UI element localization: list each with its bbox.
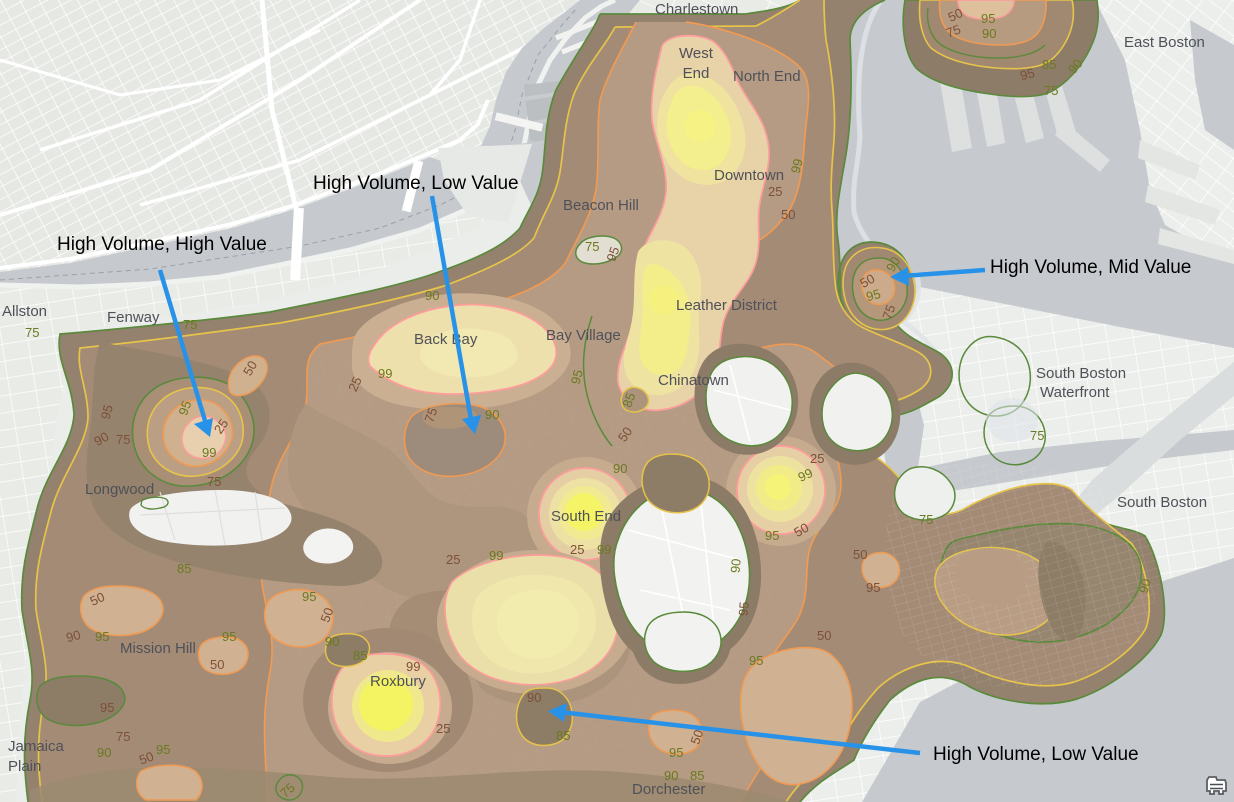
svg-text:25: 25 (446, 552, 460, 567)
svg-text:95: 95 (866, 580, 880, 595)
svg-text:Allston: Allston (2, 303, 47, 320)
svg-text:95: 95 (156, 742, 170, 757)
svg-text:High Volume, Mid Value: High Volume, Mid Value (990, 257, 1191, 278)
svg-text:85: 85 (556, 728, 570, 743)
svg-text:50: 50 (781, 207, 795, 222)
svg-text:Back Bay: Back Bay (414, 331, 478, 348)
svg-text:90: 90 (728, 558, 744, 574)
svg-text:75: 75 (116, 729, 130, 744)
svg-text:Roxbury: Roxbury (370, 673, 426, 690)
svg-text:Mission Hill: Mission Hill (120, 640, 196, 657)
svg-text:95: 95 (981, 11, 995, 26)
svg-text:75: 75 (207, 474, 221, 489)
svg-text:Plain: Plain (8, 758, 41, 775)
svg-text:90: 90 (325, 634, 339, 649)
svg-text:25: 25 (570, 542, 584, 557)
svg-text:Bay Village: Bay Village (546, 327, 621, 344)
svg-text:95: 95 (736, 601, 752, 617)
svg-text:90: 90 (485, 407, 499, 422)
svg-text:25: 25 (768, 184, 782, 199)
svg-text:95: 95 (669, 745, 683, 760)
svg-text:South Boston: South Boston (1117, 494, 1207, 511)
svg-text:South End: South End (551, 508, 621, 525)
svg-text:90: 90 (527, 690, 541, 705)
svg-text:99: 99 (202, 445, 216, 460)
svg-text:West: West (679, 45, 714, 62)
svg-text:25: 25 (436, 721, 450, 736)
svg-text:Chinatown: Chinatown (658, 372, 729, 389)
svg-text:99: 99 (489, 548, 503, 563)
svg-text:95: 95 (222, 629, 236, 644)
svg-text:75: 75 (25, 325, 39, 340)
svg-text:North End: North End (733, 68, 801, 85)
svg-text:Beacon Hill: Beacon Hill (563, 197, 639, 214)
svg-text:90: 90 (982, 26, 996, 41)
svg-text:50: 50 (210, 657, 224, 672)
svg-text:95: 95 (95, 629, 109, 644)
svg-text:95: 95 (100, 700, 114, 715)
svg-text:75: 75 (1030, 428, 1044, 443)
svg-text:99: 99 (378, 366, 392, 381)
svg-text:50: 50 (817, 628, 831, 643)
svg-text:75: 75 (585, 239, 599, 254)
svg-text:50: 50 (853, 547, 867, 562)
svg-text:Jamaica: Jamaica (8, 738, 65, 755)
svg-text:90: 90 (97, 745, 111, 760)
svg-text:South Boston: South Boston (1036, 365, 1126, 382)
svg-text:End: End (683, 65, 710, 82)
svg-text:East Boston: East Boston (1124, 34, 1205, 51)
svg-text:75: 75 (183, 317, 197, 332)
svg-text:Charlestown: Charlestown (655, 1, 738, 18)
svg-text:75: 75 (919, 512, 933, 527)
svg-text:99: 99 (597, 542, 611, 557)
svg-text:Downtown: Downtown (714, 167, 784, 184)
svg-text:85: 85 (177, 561, 191, 576)
svg-text:75: 75 (1044, 83, 1058, 98)
svg-text:Dorchester: Dorchester (632, 781, 705, 798)
svg-text:75: 75 (116, 432, 130, 447)
svg-text:Longwood: Longwood (85, 481, 154, 498)
svg-text:25: 25 (810, 451, 824, 466)
svg-text:High Volume, Low Value: High Volume, Low Value (313, 173, 519, 194)
svg-text:90: 90 (613, 461, 627, 476)
svg-text:85: 85 (1042, 57, 1056, 72)
svg-text:Leather District: Leather District (676, 297, 778, 314)
svg-text:High Volume, High Value: High Volume, High Value (57, 234, 267, 255)
svg-text:95: 95 (749, 653, 763, 668)
svg-text:Fenway: Fenway (107, 309, 160, 326)
svg-text:Waterfront: Waterfront (1040, 384, 1110, 401)
svg-text:95: 95 (302, 589, 316, 604)
svg-text:99: 99 (406, 659, 420, 674)
svg-text:95: 95 (765, 528, 779, 543)
svg-text:85: 85 (353, 648, 367, 663)
svg-text:90: 90 (425, 288, 439, 303)
svg-text:High Volume, Low Value: High Volume, Low Value (933, 744, 1139, 765)
